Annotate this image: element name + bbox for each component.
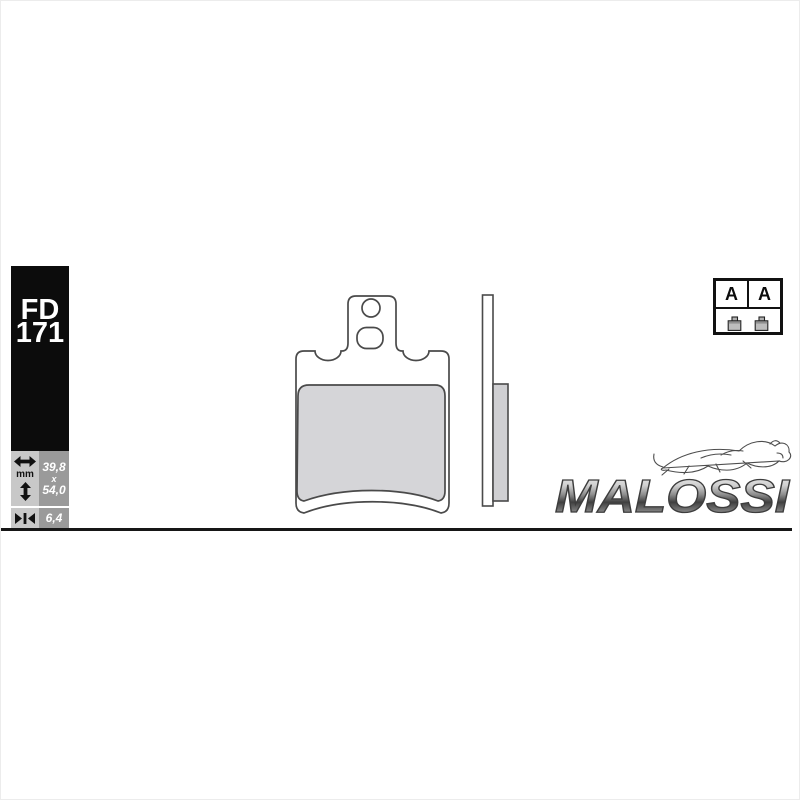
size-icons-cell: mm bbox=[11, 451, 39, 506]
multiply-label: x bbox=[51, 474, 56, 484]
malossi-logo-art: MALOSSI bbox=[551, 431, 797, 519]
brake-pad-side-friction bbox=[493, 384, 508, 501]
product-code-box: FD 171 bbox=[11, 266, 69, 451]
brake-pad-drawing bbox=[271, 271, 521, 521]
width-arrow-icon bbox=[14, 456, 36, 467]
homologation-letters-row: A A bbox=[716, 281, 780, 309]
unit-label: mm bbox=[16, 470, 34, 480]
height-arrow-icon bbox=[20, 482, 31, 501]
mounting-hole-oval bbox=[357, 328, 383, 349]
product-code-line2: 171 bbox=[11, 322, 69, 345]
dimensions-panel: mm 39,8 x 54,0 6,4 bbox=[11, 451, 69, 528]
product-image: FD 171 mm 39,8 x 54,0 bbox=[0, 0, 800, 800]
brand-wordmark: MALOSSI bbox=[555, 470, 790, 519]
thickness-value: 6,4 bbox=[46, 512, 63, 525]
homologation-icons-row bbox=[716, 309, 780, 334]
homologation-letter-right: A bbox=[747, 281, 780, 307]
mounting-hole-round bbox=[362, 299, 380, 317]
brake-pad-side-plate bbox=[483, 295, 494, 506]
thickness-row: 6,4 bbox=[11, 508, 69, 528]
size-row: mm 39,8 x 54,0 bbox=[11, 451, 69, 506]
thickness-arrows-icon bbox=[14, 513, 36, 524]
brake-pad-front-friction bbox=[297, 385, 445, 501]
width-value: 39,8 bbox=[42, 461, 65, 474]
homologation-letter-left: A bbox=[716, 281, 747, 307]
thickness-icon-cell bbox=[11, 508, 39, 528]
homologation-badge: A A bbox=[713, 278, 783, 335]
brake-pad-symbol-icon bbox=[726, 316, 743, 332]
thickness-value-cell: 6,4 bbox=[39, 508, 69, 528]
malossi-logo: MALOSSI bbox=[551, 431, 797, 519]
size-values-cell: 39,8 x 54,0 bbox=[39, 451, 69, 506]
baseline-rule bbox=[1, 528, 792, 531]
height-value: 54,0 bbox=[42, 484, 65, 497]
brake-pad-symbol-icon bbox=[753, 316, 770, 332]
